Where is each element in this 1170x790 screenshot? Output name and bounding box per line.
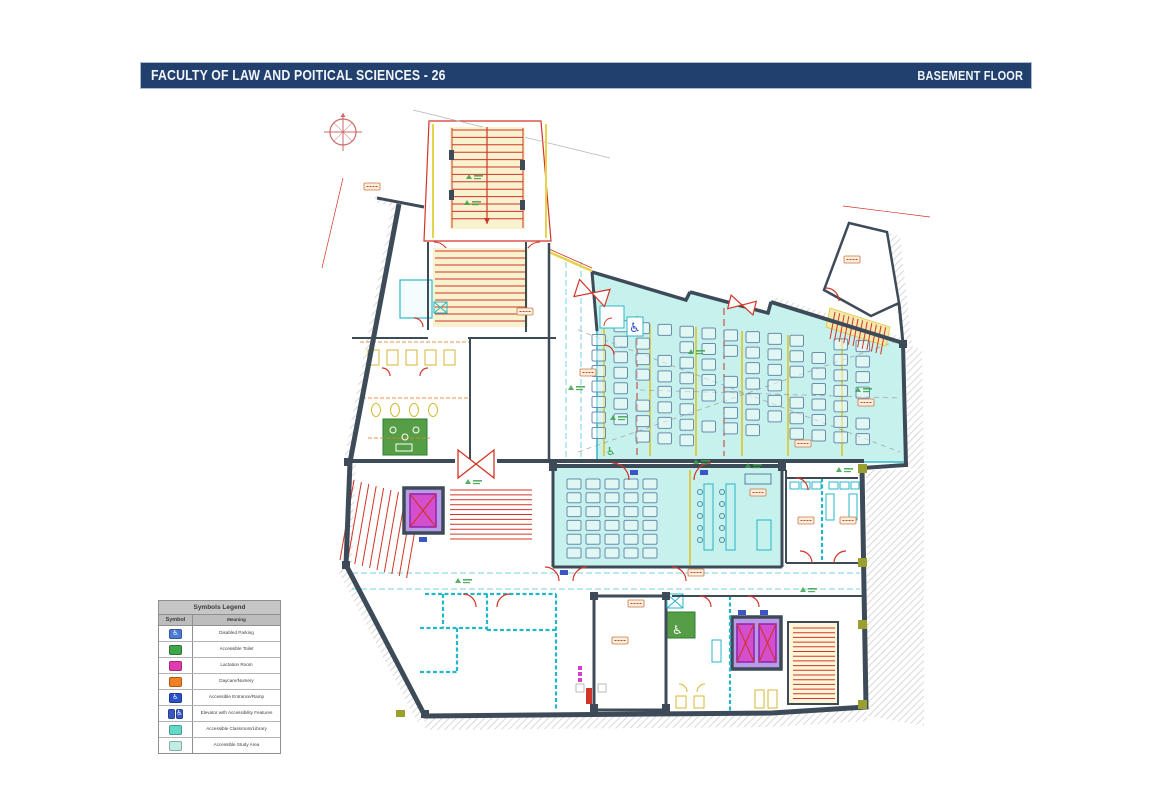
accessible-entrance-ramp-icon: ♿ xyxy=(169,693,182,703)
legend-row: ♿ Disabled Parking xyxy=(159,626,280,642)
legend-row: Accessible Classroom/Library xyxy=(159,722,280,738)
lactation-room-icon xyxy=(169,661,182,671)
accessible-toilet-icon xyxy=(169,645,182,655)
page: FACULTY OF LAW AND POITICAL SCIENCES - 2… xyxy=(0,0,1170,790)
legend-row: Daycare/Nursery xyxy=(159,674,280,690)
accessible-elevator-icon-2: ♿ xyxy=(176,709,183,719)
elevator-bank xyxy=(732,610,781,669)
svg-text:♿: ♿ xyxy=(606,445,616,458)
accessible-elevator-icon xyxy=(168,709,175,719)
legend-row: Lactation Room xyxy=(159,658,280,674)
compass-icon xyxy=(324,113,362,151)
svg-text:♿: ♿ xyxy=(672,623,683,637)
accessible-study-area-icon xyxy=(169,741,182,751)
symbols-legend: Symbols Legend Symbol Meaning ♿ Disabled… xyxy=(158,600,281,754)
upper-right-room xyxy=(824,223,899,316)
legend-title: Symbols Legend xyxy=(159,601,280,615)
legend-col-meaning: Meaning xyxy=(193,615,280,625)
legend-row: Accessible Study Area xyxy=(159,738,280,753)
disabled-parking-icon: ♿ xyxy=(169,629,182,639)
legend-row: Accessible Toilet xyxy=(159,642,280,658)
accessible-classroom-icon xyxy=(169,725,182,735)
elevator-1 xyxy=(404,488,443,542)
legend-col-symbol: Symbol xyxy=(159,615,193,625)
legend-row: ♿ Accessible Entrance/Ramp xyxy=(159,690,280,706)
legend-header: Symbol Meaning xyxy=(159,615,280,626)
accessible-toilet-room xyxy=(383,419,427,455)
daycare-nursery-icon xyxy=(169,677,182,687)
legend-row: ♿ Elevator with Accessibility Features xyxy=(159,706,280,722)
svg-text:♿: ♿ xyxy=(629,321,641,336)
